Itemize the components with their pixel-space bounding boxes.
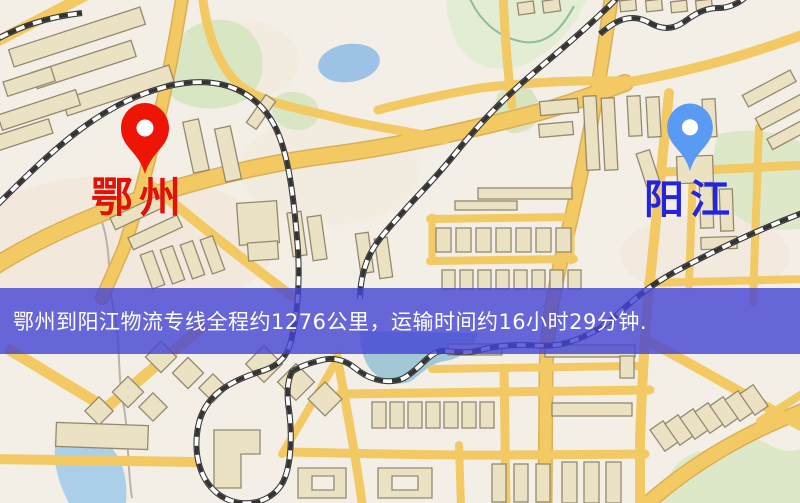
logistics-route-map: 鄂州 阳江 鄂州到阳江物流专线全程约1276公里，运输时间约16小时29分钟.	[0, 0, 800, 503]
origin-city-label: 鄂州	[91, 177, 187, 219]
route-info-text: 鄂州到阳江物流专线全程约1276公里，运输时间约16小时29分钟.	[13, 306, 647, 336]
route-info-banner: 鄂州到阳江物流专线全程约1276公里，运输时间约16小时29分钟.	[0, 288, 800, 354]
map-image	[0, 0, 800, 503]
destination-city-label: 阳江	[644, 180, 736, 220]
